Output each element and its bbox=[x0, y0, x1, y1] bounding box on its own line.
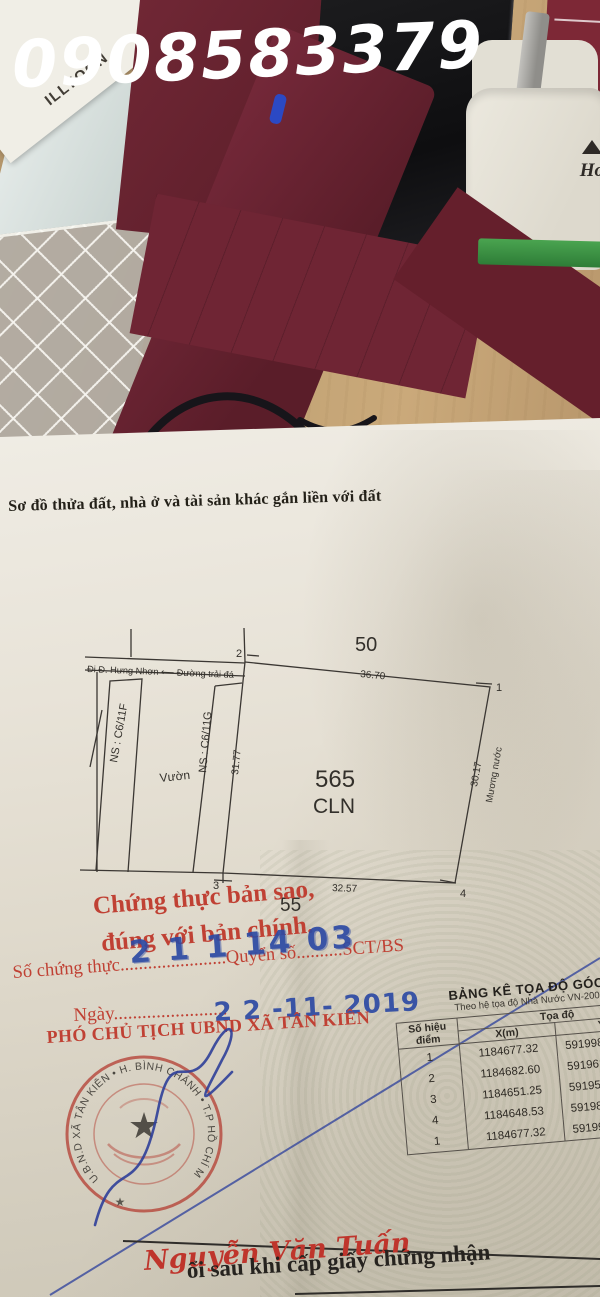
overlay-lines bbox=[0, 410, 600, 1297]
desk-background: ILLYOON Ho 0908583379 bbox=[0, 0, 600, 460]
document-paper: Sơ đồ thửa đất, nhà ở và tài sản khác gắ… bbox=[0, 410, 600, 1297]
underline bbox=[295, 1286, 600, 1294]
coordinate-table-grid: Số hiệu điểm Tọa độ X(m) Y(m) 1 1184677.… bbox=[396, 1000, 600, 1155]
cell-point: 1 bbox=[406, 1128, 469, 1155]
coordinate-table: BẢNG KÊ TỌA ĐỘ GÓC RANH Theo hệ tọa độ N… bbox=[393, 968, 600, 1156]
